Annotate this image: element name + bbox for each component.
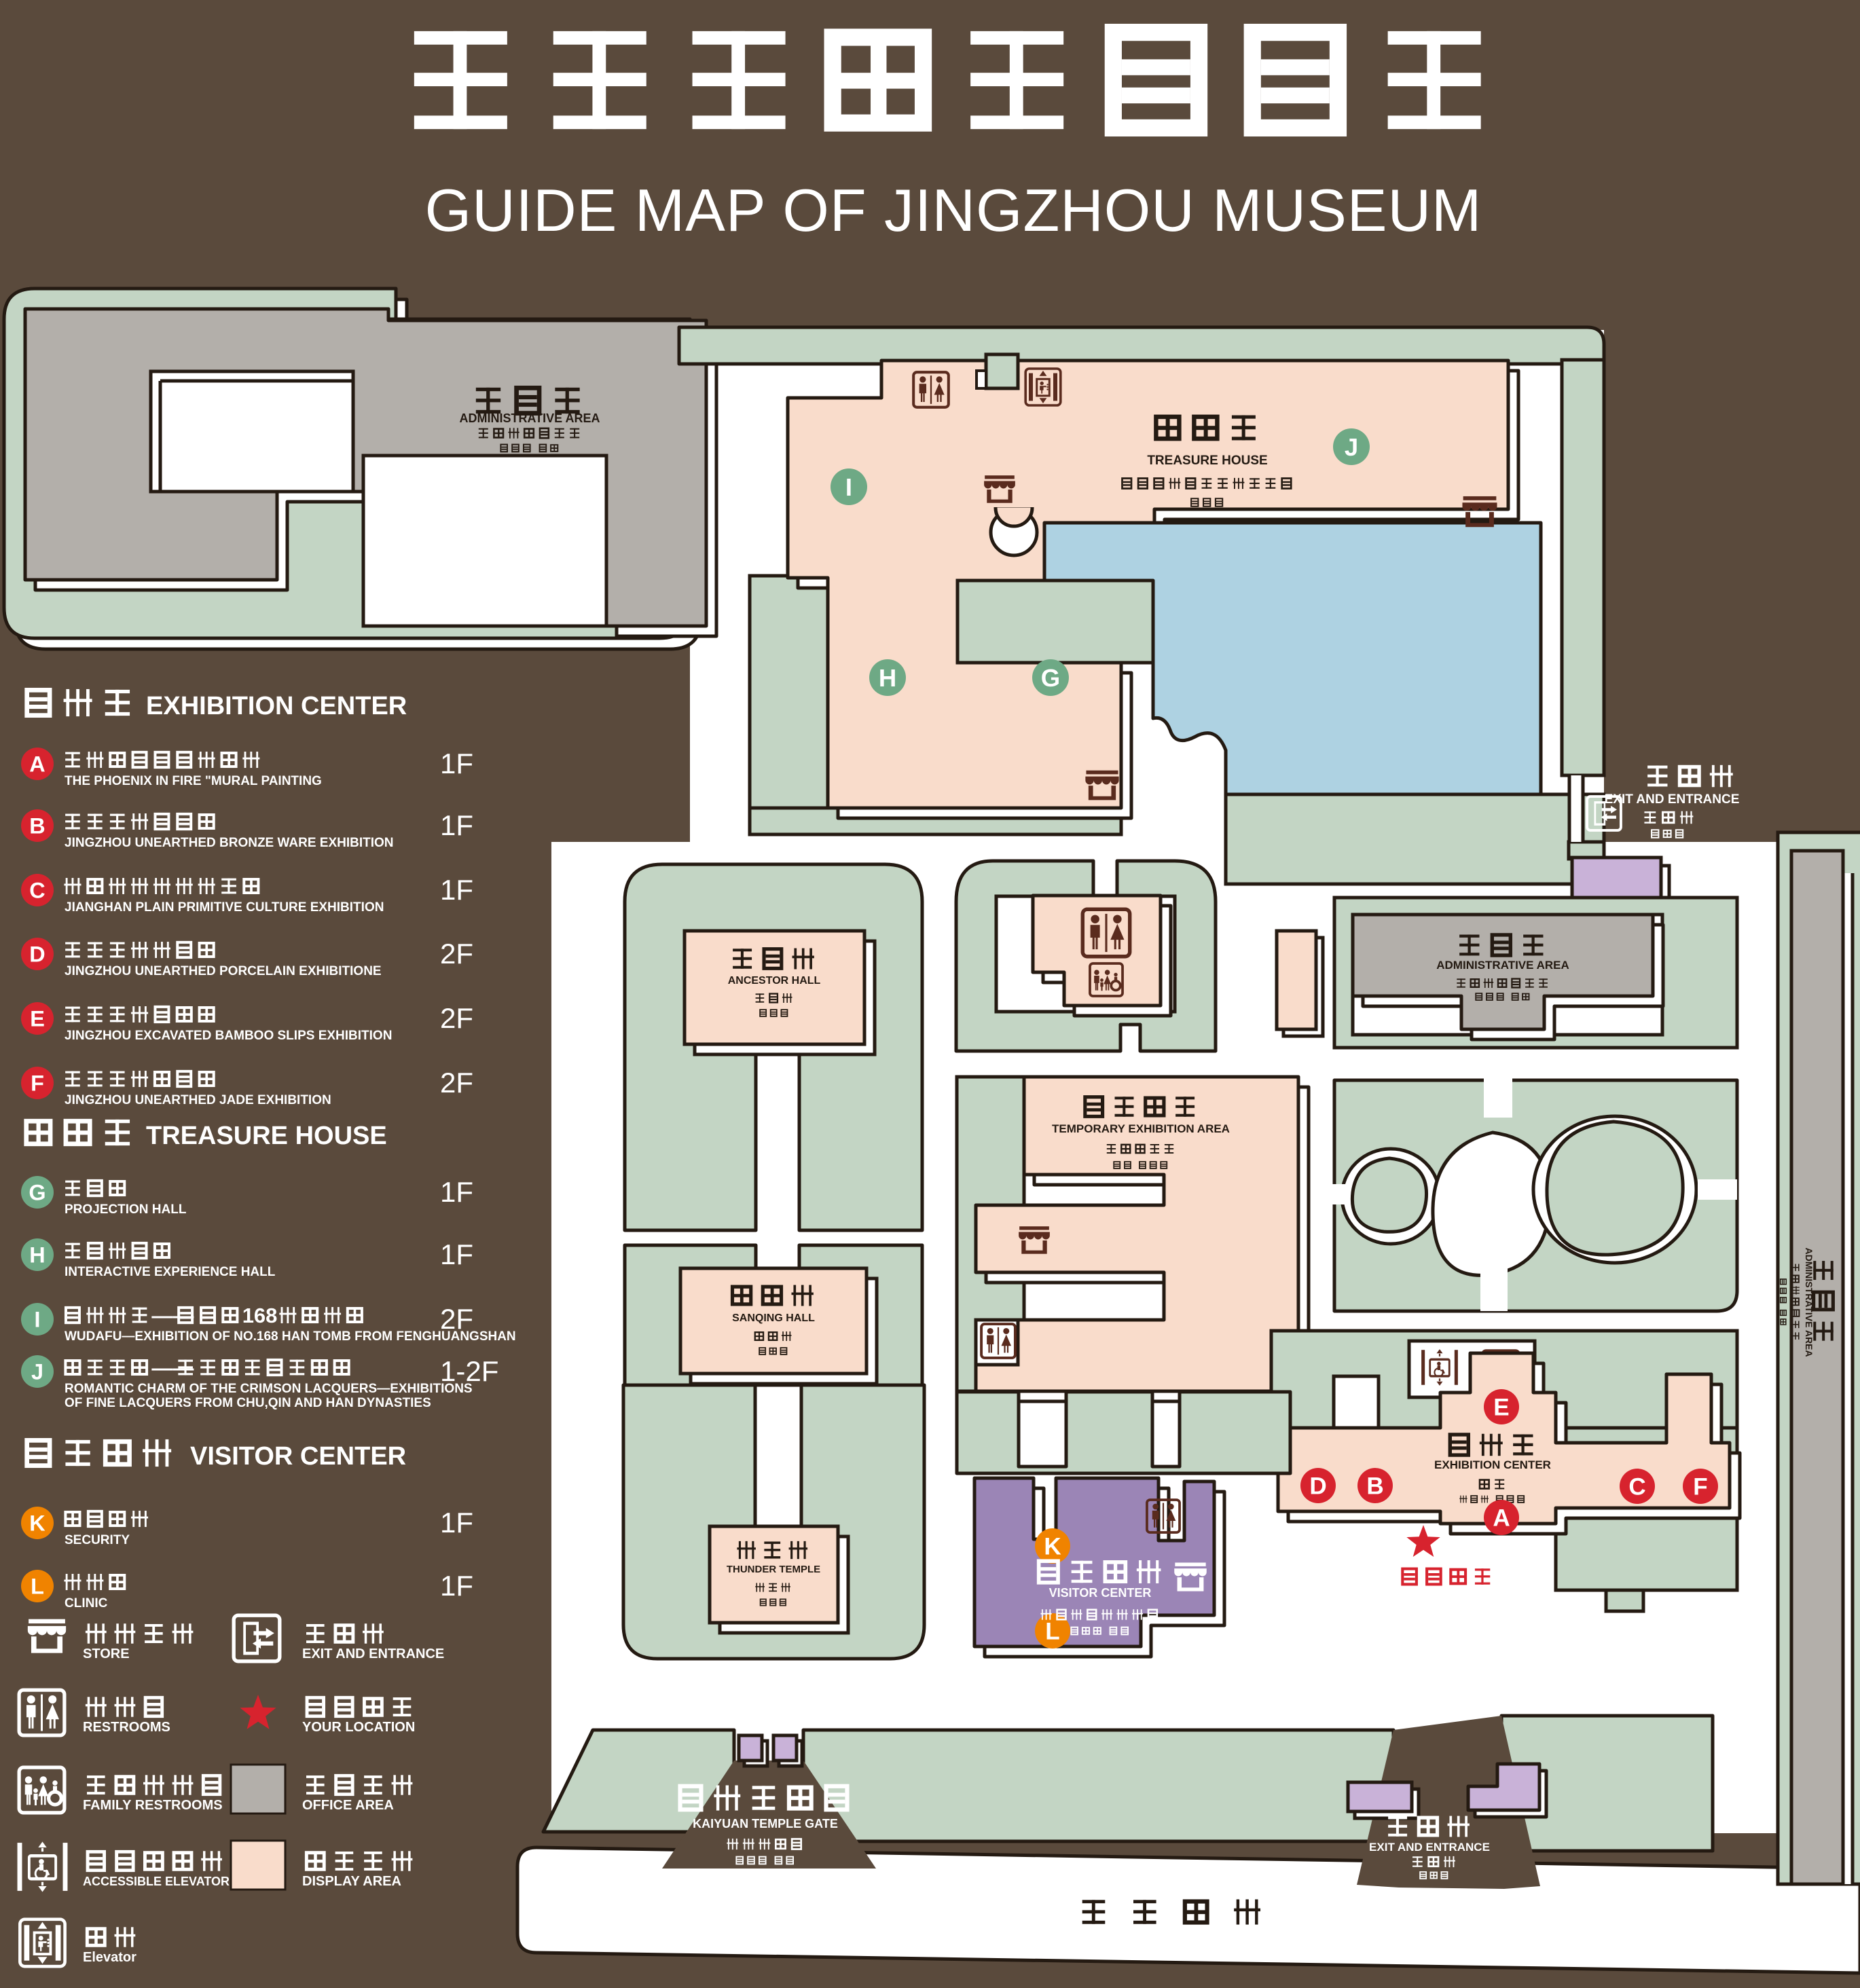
svg-text:H: H bbox=[29, 1242, 45, 1267]
svg-text:DISPLAY AREA: DISPLAY AREA bbox=[302, 1874, 401, 1889]
svg-text:G: G bbox=[29, 1180, 45, 1204]
svg-text:F: F bbox=[1693, 1473, 1707, 1500]
svg-text:C: C bbox=[1628, 1473, 1645, 1500]
svg-text:168: 168 bbox=[242, 1304, 278, 1327]
svg-text:E: E bbox=[1493, 1394, 1509, 1420]
svg-text:2F: 2F bbox=[440, 1067, 473, 1099]
svg-text:F: F bbox=[31, 1071, 44, 1095]
svg-text:VISITOR CENTER: VISITOR CENTER bbox=[190, 1442, 406, 1471]
svg-text:E: E bbox=[30, 1006, 45, 1031]
svg-text:K: K bbox=[1044, 1533, 1061, 1560]
svg-text:ADMINISTRATIVE AREA: ADMINISTRATIVE AREA bbox=[460, 411, 600, 425]
svg-text:SECURITY: SECURITY bbox=[65, 1533, 130, 1547]
svg-text:ADMINISTRATIVE AREA: ADMINISTRATIVE AREA bbox=[1804, 1248, 1815, 1357]
svg-text:TREASURE HOUSE: TREASURE HOUSE bbox=[146, 1122, 387, 1150]
svg-text:STORE: STORE bbox=[83, 1646, 130, 1661]
svg-text:I: I bbox=[845, 473, 852, 501]
svg-text:H: H bbox=[879, 664, 896, 692]
svg-text:I: I bbox=[35, 1307, 41, 1331]
svg-text:EXHIBITION CENTER: EXHIBITION CENTER bbox=[1434, 1458, 1551, 1471]
svg-text:B: B bbox=[1366, 1473, 1383, 1499]
svg-text:B: B bbox=[29, 813, 45, 838]
svg-text:JINGZHOU UNEARTHED JADE EXHIBI: JINGZHOU UNEARTHED JADE EXHIBITION bbox=[65, 1093, 331, 1107]
svg-text:TREASURE HOUSE: TREASURE HOUSE bbox=[1147, 454, 1267, 468]
svg-text:VISITOR CENTER: VISITOR CENTER bbox=[1049, 1586, 1152, 1600]
svg-text:OFFICE AREA: OFFICE AREA bbox=[302, 1798, 394, 1813]
svg-text:THE PHOENIX IN FIRE "MURAL PAI: THE PHOENIX IN FIRE "MURAL PAINTING bbox=[65, 774, 322, 788]
svg-text:1F: 1F bbox=[440, 1238, 473, 1270]
svg-text:1F: 1F bbox=[440, 748, 473, 779]
svg-text:2F: 2F bbox=[440, 938, 473, 970]
svg-text:EXIT AND ENTRANCE: EXIT AND ENTRANCE bbox=[1605, 792, 1740, 807]
svg-text:K: K bbox=[29, 1511, 45, 1535]
svg-text:C: C bbox=[29, 878, 45, 902]
svg-text:G: G bbox=[1041, 664, 1060, 692]
svg-text:EXIT AND ENTRANCE: EXIT AND ENTRANCE bbox=[1369, 1841, 1490, 1854]
svg-text:J: J bbox=[1345, 433, 1358, 461]
svg-text:1F: 1F bbox=[440, 809, 473, 841]
svg-text:2F: 2F bbox=[440, 1303, 473, 1335]
svg-text:Elevator: Elevator bbox=[83, 1950, 136, 1965]
svg-text:INTERACTIVE EXPERIENCE HALL: INTERACTIVE EXPERIENCE HALL bbox=[65, 1265, 276, 1279]
svg-text:RESTROOMS: RESTROOMS bbox=[83, 1720, 170, 1735]
svg-text:PROJECTION HALL: PROJECTION HALL bbox=[65, 1202, 187, 1217]
svg-text:JINGZHOU UNEARTHED BRONZE WARE: JINGZHOU UNEARTHED BRONZE WARE EXHIBITIO… bbox=[65, 836, 394, 850]
svg-text:1F: 1F bbox=[440, 1570, 473, 1602]
svg-text:A: A bbox=[29, 752, 45, 776]
svg-text:THUNDER TEMPLE: THUNDER TEMPLE bbox=[727, 1564, 820, 1575]
svg-text:JINGZHOU UNEARTHED PORCELAIN E: JINGZHOU UNEARTHED PORCELAIN EXHIBITIONE bbox=[65, 964, 382, 978]
svg-text:1F: 1F bbox=[440, 1176, 473, 1208]
svg-text:ADMINISTRATIVE AREA: ADMINISTRATIVE AREA bbox=[1436, 959, 1569, 972]
svg-text:1F: 1F bbox=[440, 1507, 473, 1539]
svg-text:GUIDE MAP OF JINGZHOU MUSEUM: GUIDE MAP OF JINGZHOU MUSEUM bbox=[425, 177, 1482, 244]
svg-text:JIANGHAN PLAIN PRIMITIVE CULTU: JIANGHAN PLAIN PRIMITIVE CULTURE EXHIBIT… bbox=[65, 900, 384, 915]
svg-text:L: L bbox=[1045, 1618, 1059, 1644]
svg-text:KAIYUAN TEMPLE GATE: KAIYUAN TEMPLE GATE bbox=[693, 1817, 838, 1830]
svg-text:CLINIC: CLINIC bbox=[65, 1596, 108, 1610]
svg-text:ACCESSIBLE ELEVATOR: ACCESSIBLE ELEVATOR bbox=[83, 1875, 230, 1888]
svg-text:EXHIBITION CENTER: EXHIBITION CENTER bbox=[146, 692, 407, 720]
svg-text:ROMANTIC CHARM OF THE CRIMSON: ROMANTIC CHARM OF THE CRIMSON LACQUERS—E… bbox=[65, 1382, 473, 1396]
svg-text:J: J bbox=[31, 1359, 43, 1384]
svg-text:YOUR LOCATION: YOUR LOCATION bbox=[302, 1720, 415, 1735]
svg-text:JINGZHOU EXCAVATED BAMBOO SLIP: JINGZHOU EXCAVATED BAMBOO SLIPS EXHIBITI… bbox=[65, 1029, 392, 1043]
svg-text:D: D bbox=[1309, 1473, 1326, 1499]
svg-text:ANCESTOR HALL: ANCESTOR HALL bbox=[728, 975, 821, 987]
svg-text:FAMILY RESTROOMS: FAMILY RESTROOMS bbox=[83, 1798, 223, 1813]
svg-text:SANQING HALL: SANQING HALL bbox=[732, 1312, 815, 1324]
svg-text:L: L bbox=[31, 1574, 44, 1598]
svg-text:TEMPORARY EXHIBITION AREA: TEMPORARY EXHIBITION AREA bbox=[1052, 1122, 1230, 1135]
svg-text:D: D bbox=[29, 942, 45, 966]
svg-text:OF FINE LACQUERS FROM CHU,QIN: OF FINE LACQUERS FROM CHU,QIN AND HAN DY… bbox=[65, 1396, 431, 1410]
svg-text:2F: 2F bbox=[440, 1002, 473, 1034]
svg-text:1-2F: 1-2F bbox=[440, 1355, 498, 1387]
svg-text:A: A bbox=[1493, 1505, 1510, 1531]
svg-text:1F: 1F bbox=[440, 874, 473, 906]
svg-text:EXIT AND ENTRANCE: EXIT AND ENTRANCE bbox=[302, 1646, 444, 1661]
